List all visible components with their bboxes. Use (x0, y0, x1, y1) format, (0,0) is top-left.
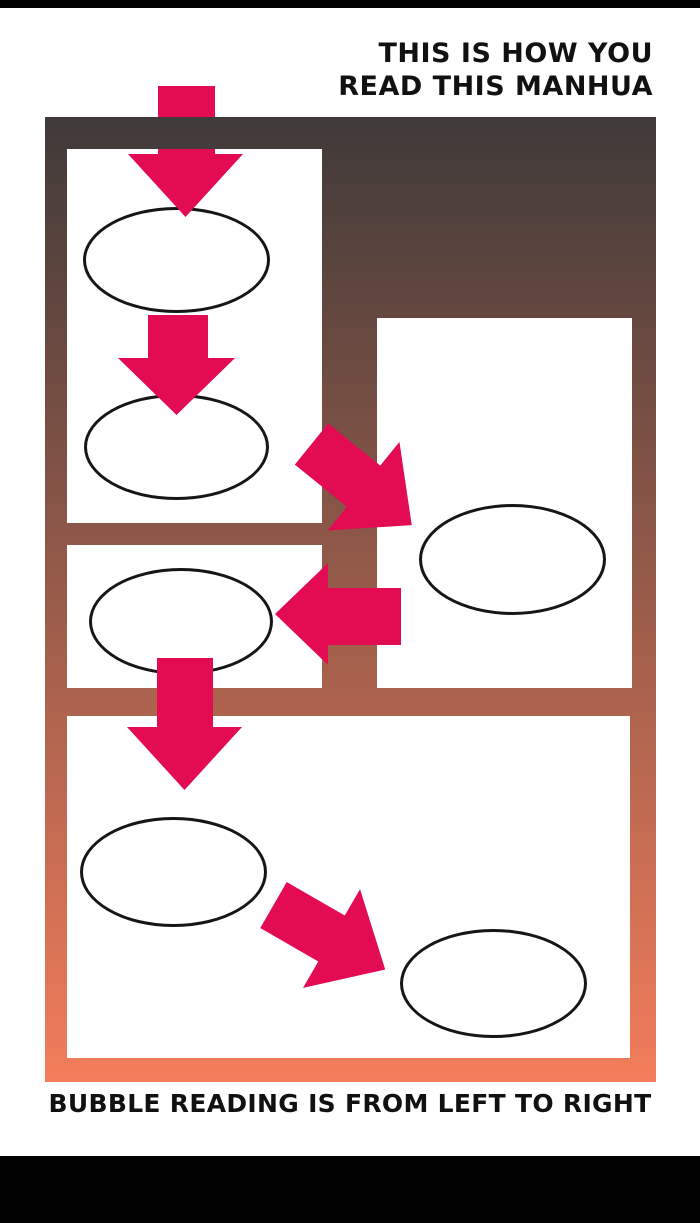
bottom-caption: BUBBLE READING IS FROM LEFT TO RIGHT (0, 1089, 700, 1119)
speech-bubble-1 (83, 207, 270, 313)
page-title: THIS IS HOW YOU READ THIS MANHUA (338, 37, 653, 103)
speech-bubble-2 (84, 394, 269, 500)
speech-bubble-3 (419, 504, 606, 615)
bottom-letterbox-bar (0, 1156, 700, 1223)
top-letterbox-bar (0, 0, 700, 8)
speech-bubble-6 (400, 929, 587, 1038)
comic-page: THIS IS HOW YOU READ THIS MANHUA BUBBLE (0, 0, 700, 1223)
panel-right (377, 318, 632, 688)
speech-bubble-4 (89, 568, 273, 675)
speech-bubble-5 (80, 817, 267, 927)
